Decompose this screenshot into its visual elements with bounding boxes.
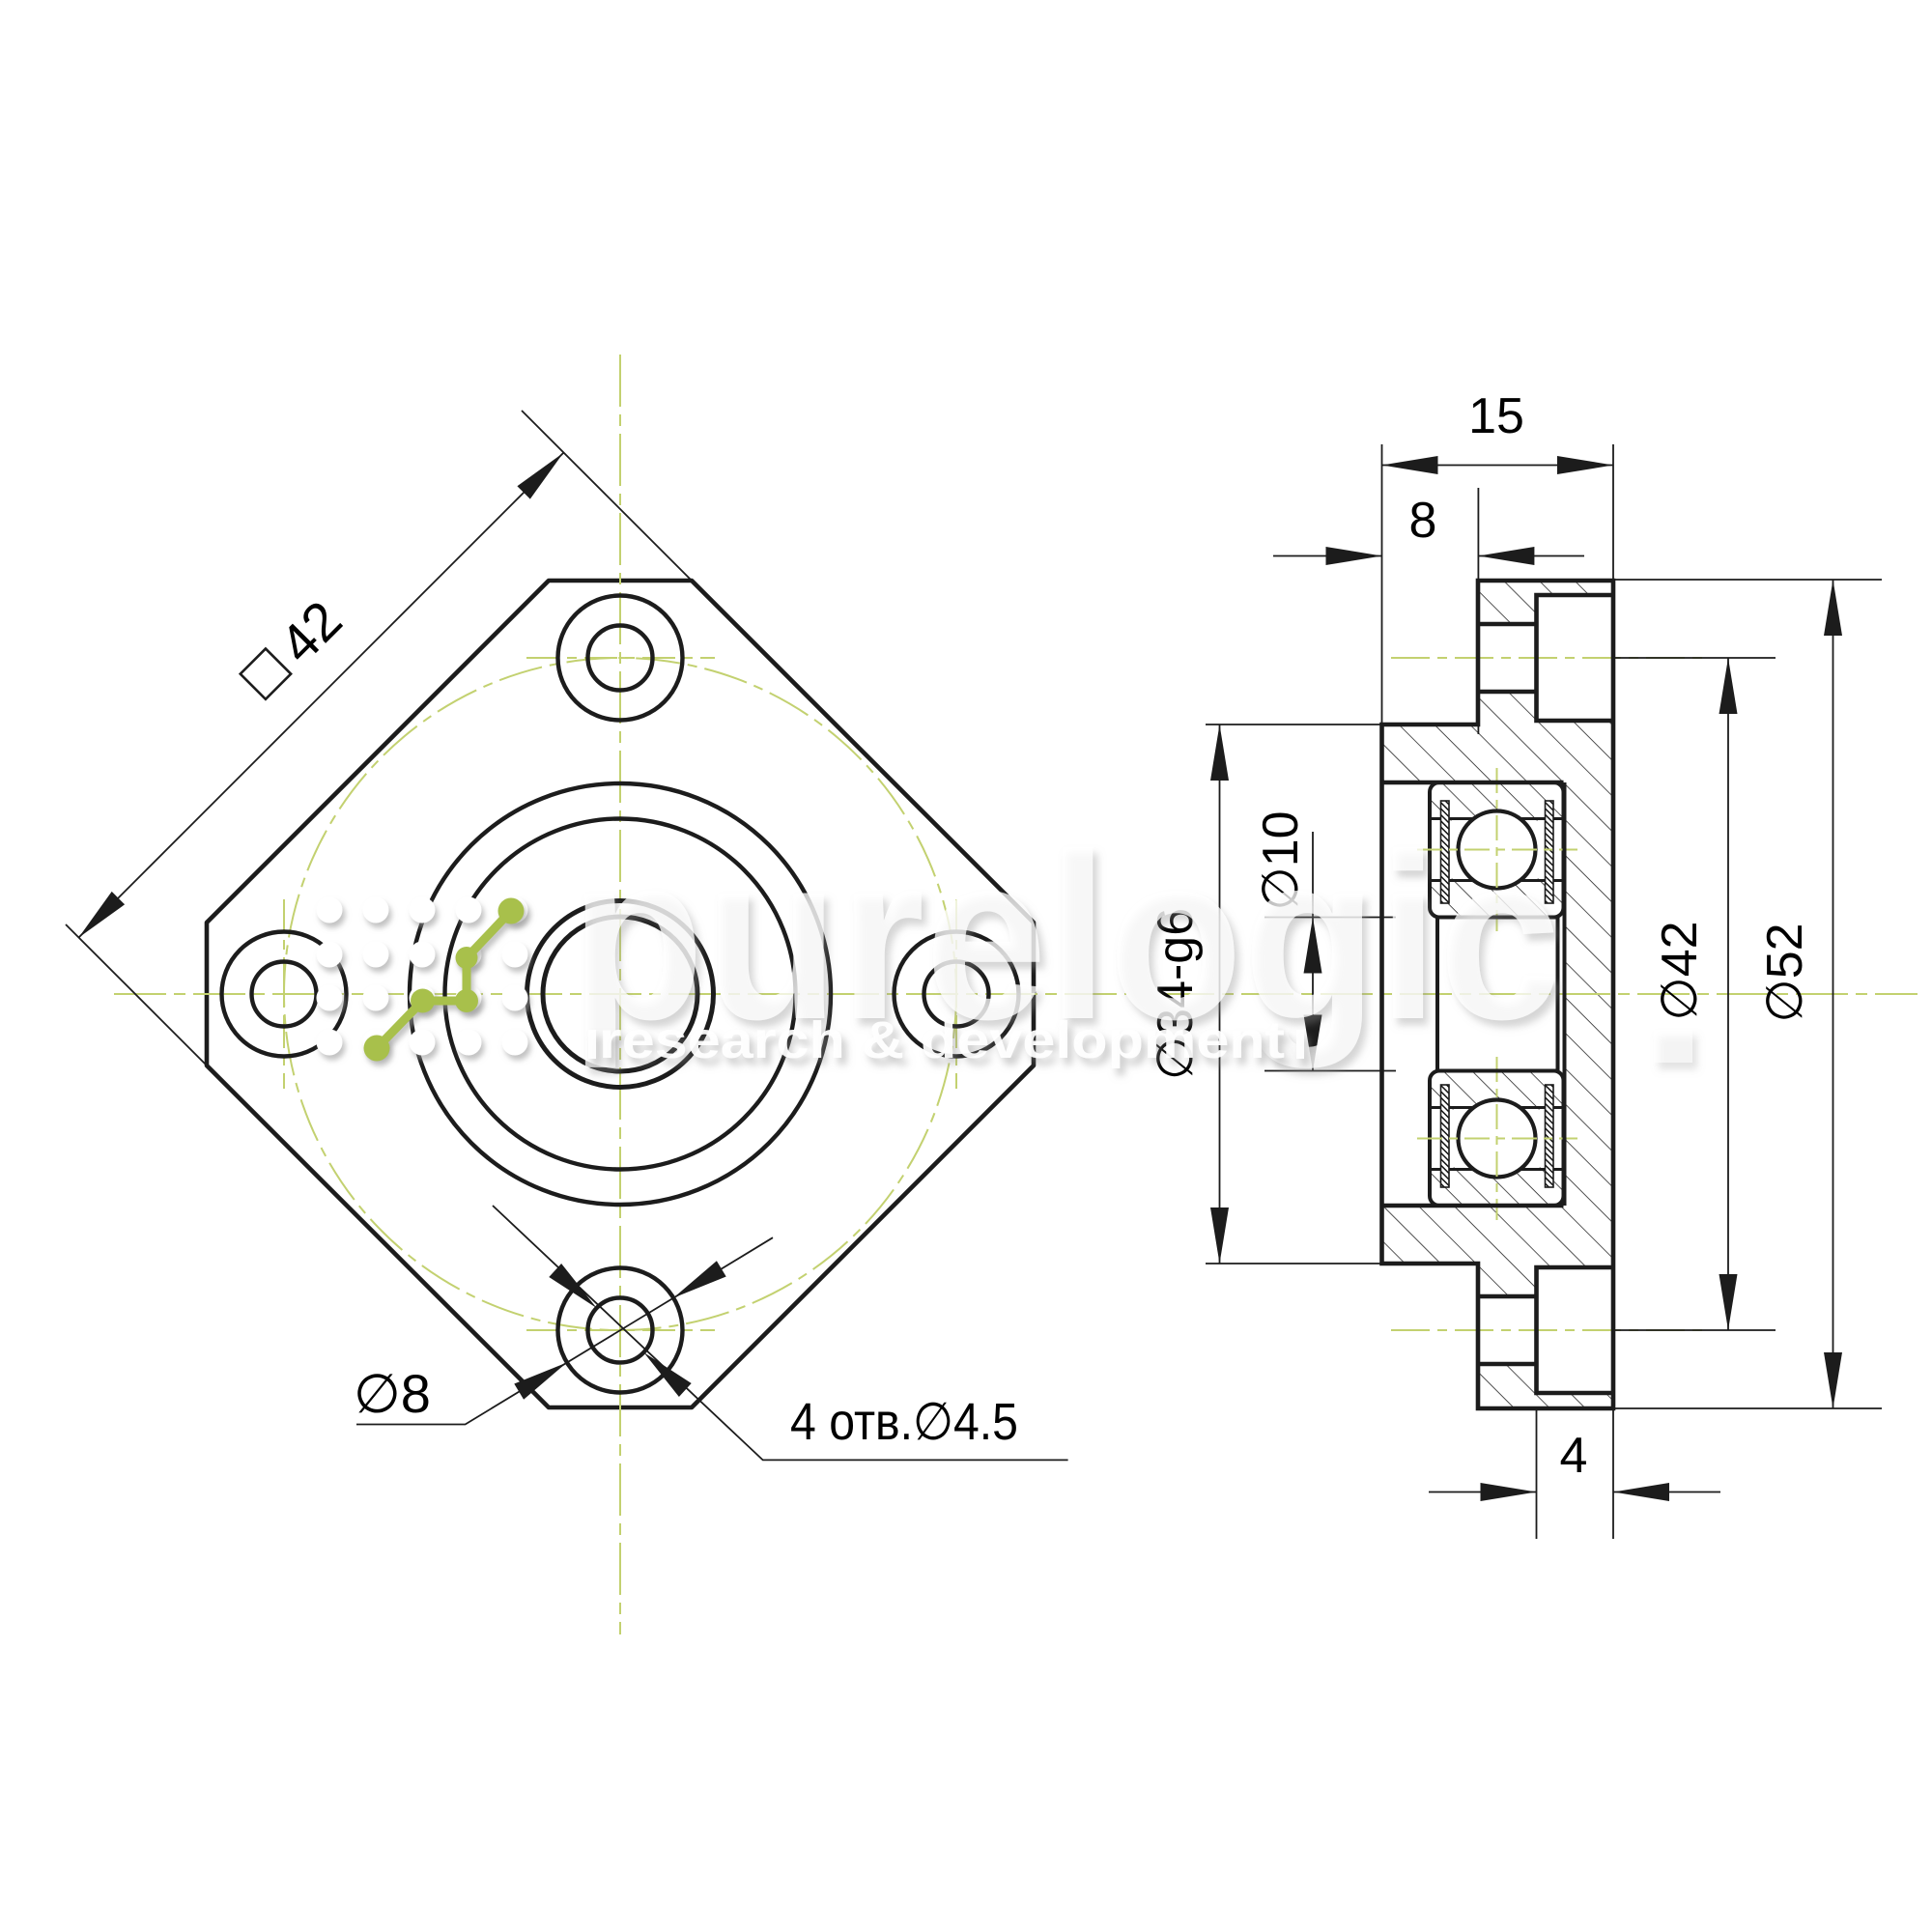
svg-text:∅8: ∅8 — [354, 1363, 431, 1424]
svg-text:∅42: ∅42 — [1652, 921, 1708, 1020]
svg-text:4 отв.∅4.5: 4 отв.∅4.5 — [790, 1393, 1018, 1451]
svg-text:4: 4 — [1560, 1428, 1588, 1484]
svg-text:research & development: research & development — [599, 1011, 1285, 1069]
svg-text:15: 15 — [1468, 388, 1524, 444]
svg-text:8: 8 — [1409, 493, 1437, 549]
svg-text:∅52: ∅52 — [1757, 923, 1813, 1022]
